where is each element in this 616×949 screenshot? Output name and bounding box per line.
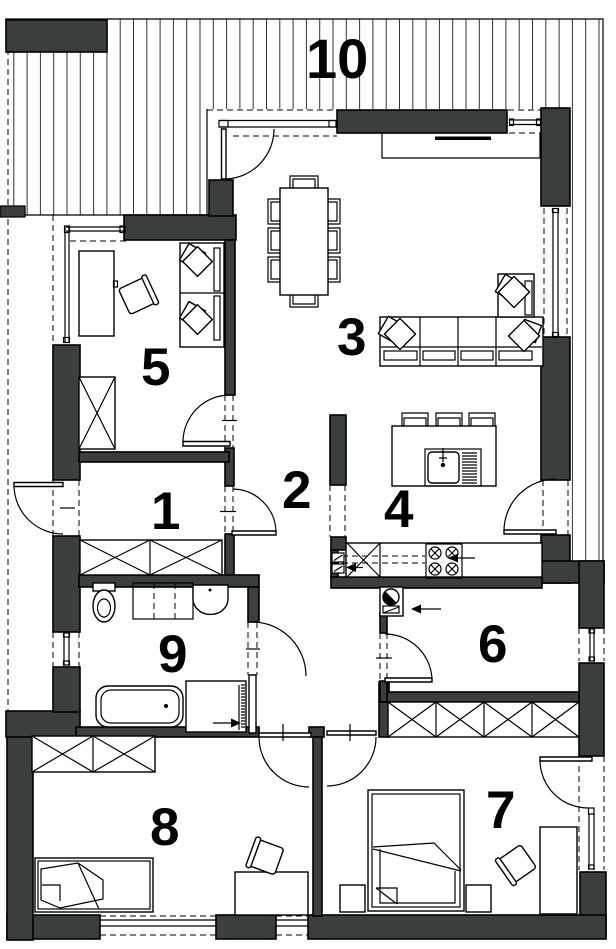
svg-text:6: 6 bbox=[478, 615, 507, 674]
svg-text:9: 9 bbox=[158, 625, 187, 684]
svg-text:1: 1 bbox=[151, 482, 180, 541]
svg-text:3: 3 bbox=[337, 308, 366, 367]
svg-text:2: 2 bbox=[282, 461, 311, 520]
svg-text:4: 4 bbox=[384, 480, 414, 539]
svg-text:5: 5 bbox=[141, 338, 170, 397]
svg-text:8: 8 bbox=[150, 798, 179, 857]
svg-text:10: 10 bbox=[306, 27, 368, 90]
svg-text:7: 7 bbox=[486, 781, 515, 840]
